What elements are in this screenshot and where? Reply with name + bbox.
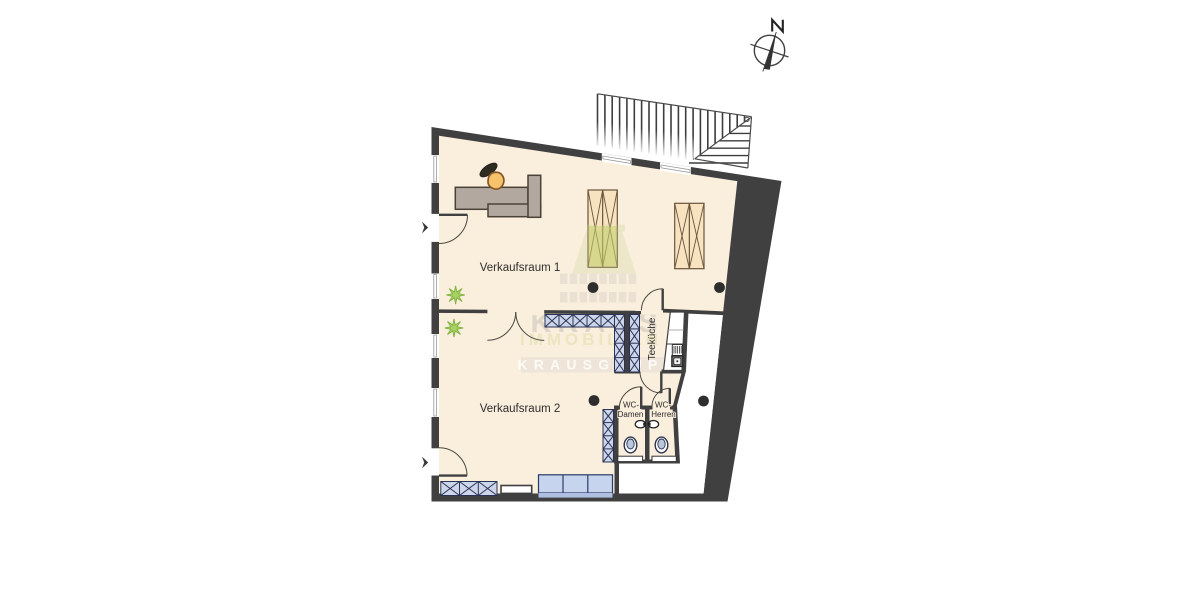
svg-text:Damen: Damen xyxy=(618,410,644,419)
svg-text:WC-: WC- xyxy=(655,401,671,410)
svg-text:Herren: Herren xyxy=(651,410,675,419)
svg-text:Verkaufsraum 1: Verkaufsraum 1 xyxy=(480,262,561,274)
svg-text:IMMOBILIEN: IMMOBILIEN xyxy=(520,330,662,349)
svg-text:Verkaufsraum 2: Verkaufsraum 2 xyxy=(480,403,561,415)
svg-text:WC-: WC- xyxy=(623,401,639,410)
svg-text:Teeküche: Teeküche xyxy=(647,317,658,360)
